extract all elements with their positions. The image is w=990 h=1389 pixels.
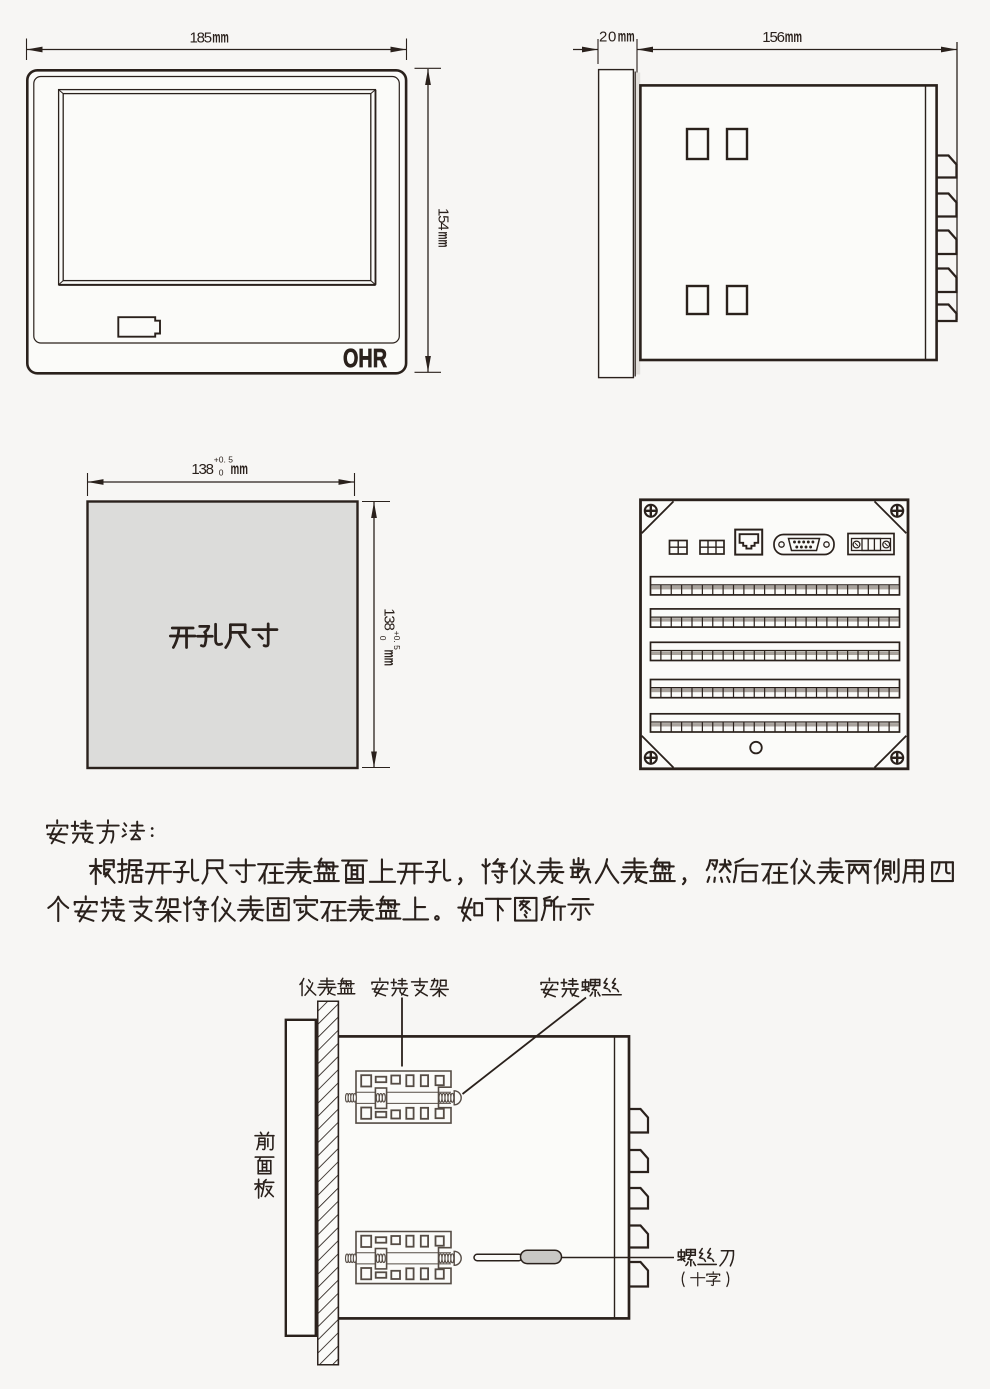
svg-text:OHR: OHR [343, 345, 387, 373]
svg-text:154: 154 [434, 208, 451, 230]
svg-text:mm: mm [381, 650, 398, 666]
svg-text:138: 138 [381, 608, 398, 630]
svg-text:0: 0 [378, 636, 388, 641]
svg-text:0: 0 [219, 468, 224, 478]
svg-text:185: 185 [190, 30, 212, 47]
svg-text:mm: mm [785, 29, 802, 46]
svg-text:138: 138 [191, 461, 213, 478]
svg-text:156: 156 [762, 29, 784, 46]
svg-text:mm: mm [212, 30, 229, 47]
svg-text:+0. 5: +0. 5 [392, 631, 402, 650]
svg-text:20: 20 [599, 29, 617, 46]
svg-text:mm: mm [434, 232, 451, 248]
svg-text:mm: mm [618, 29, 635, 46]
svg-text:mm: mm [231, 461, 248, 478]
